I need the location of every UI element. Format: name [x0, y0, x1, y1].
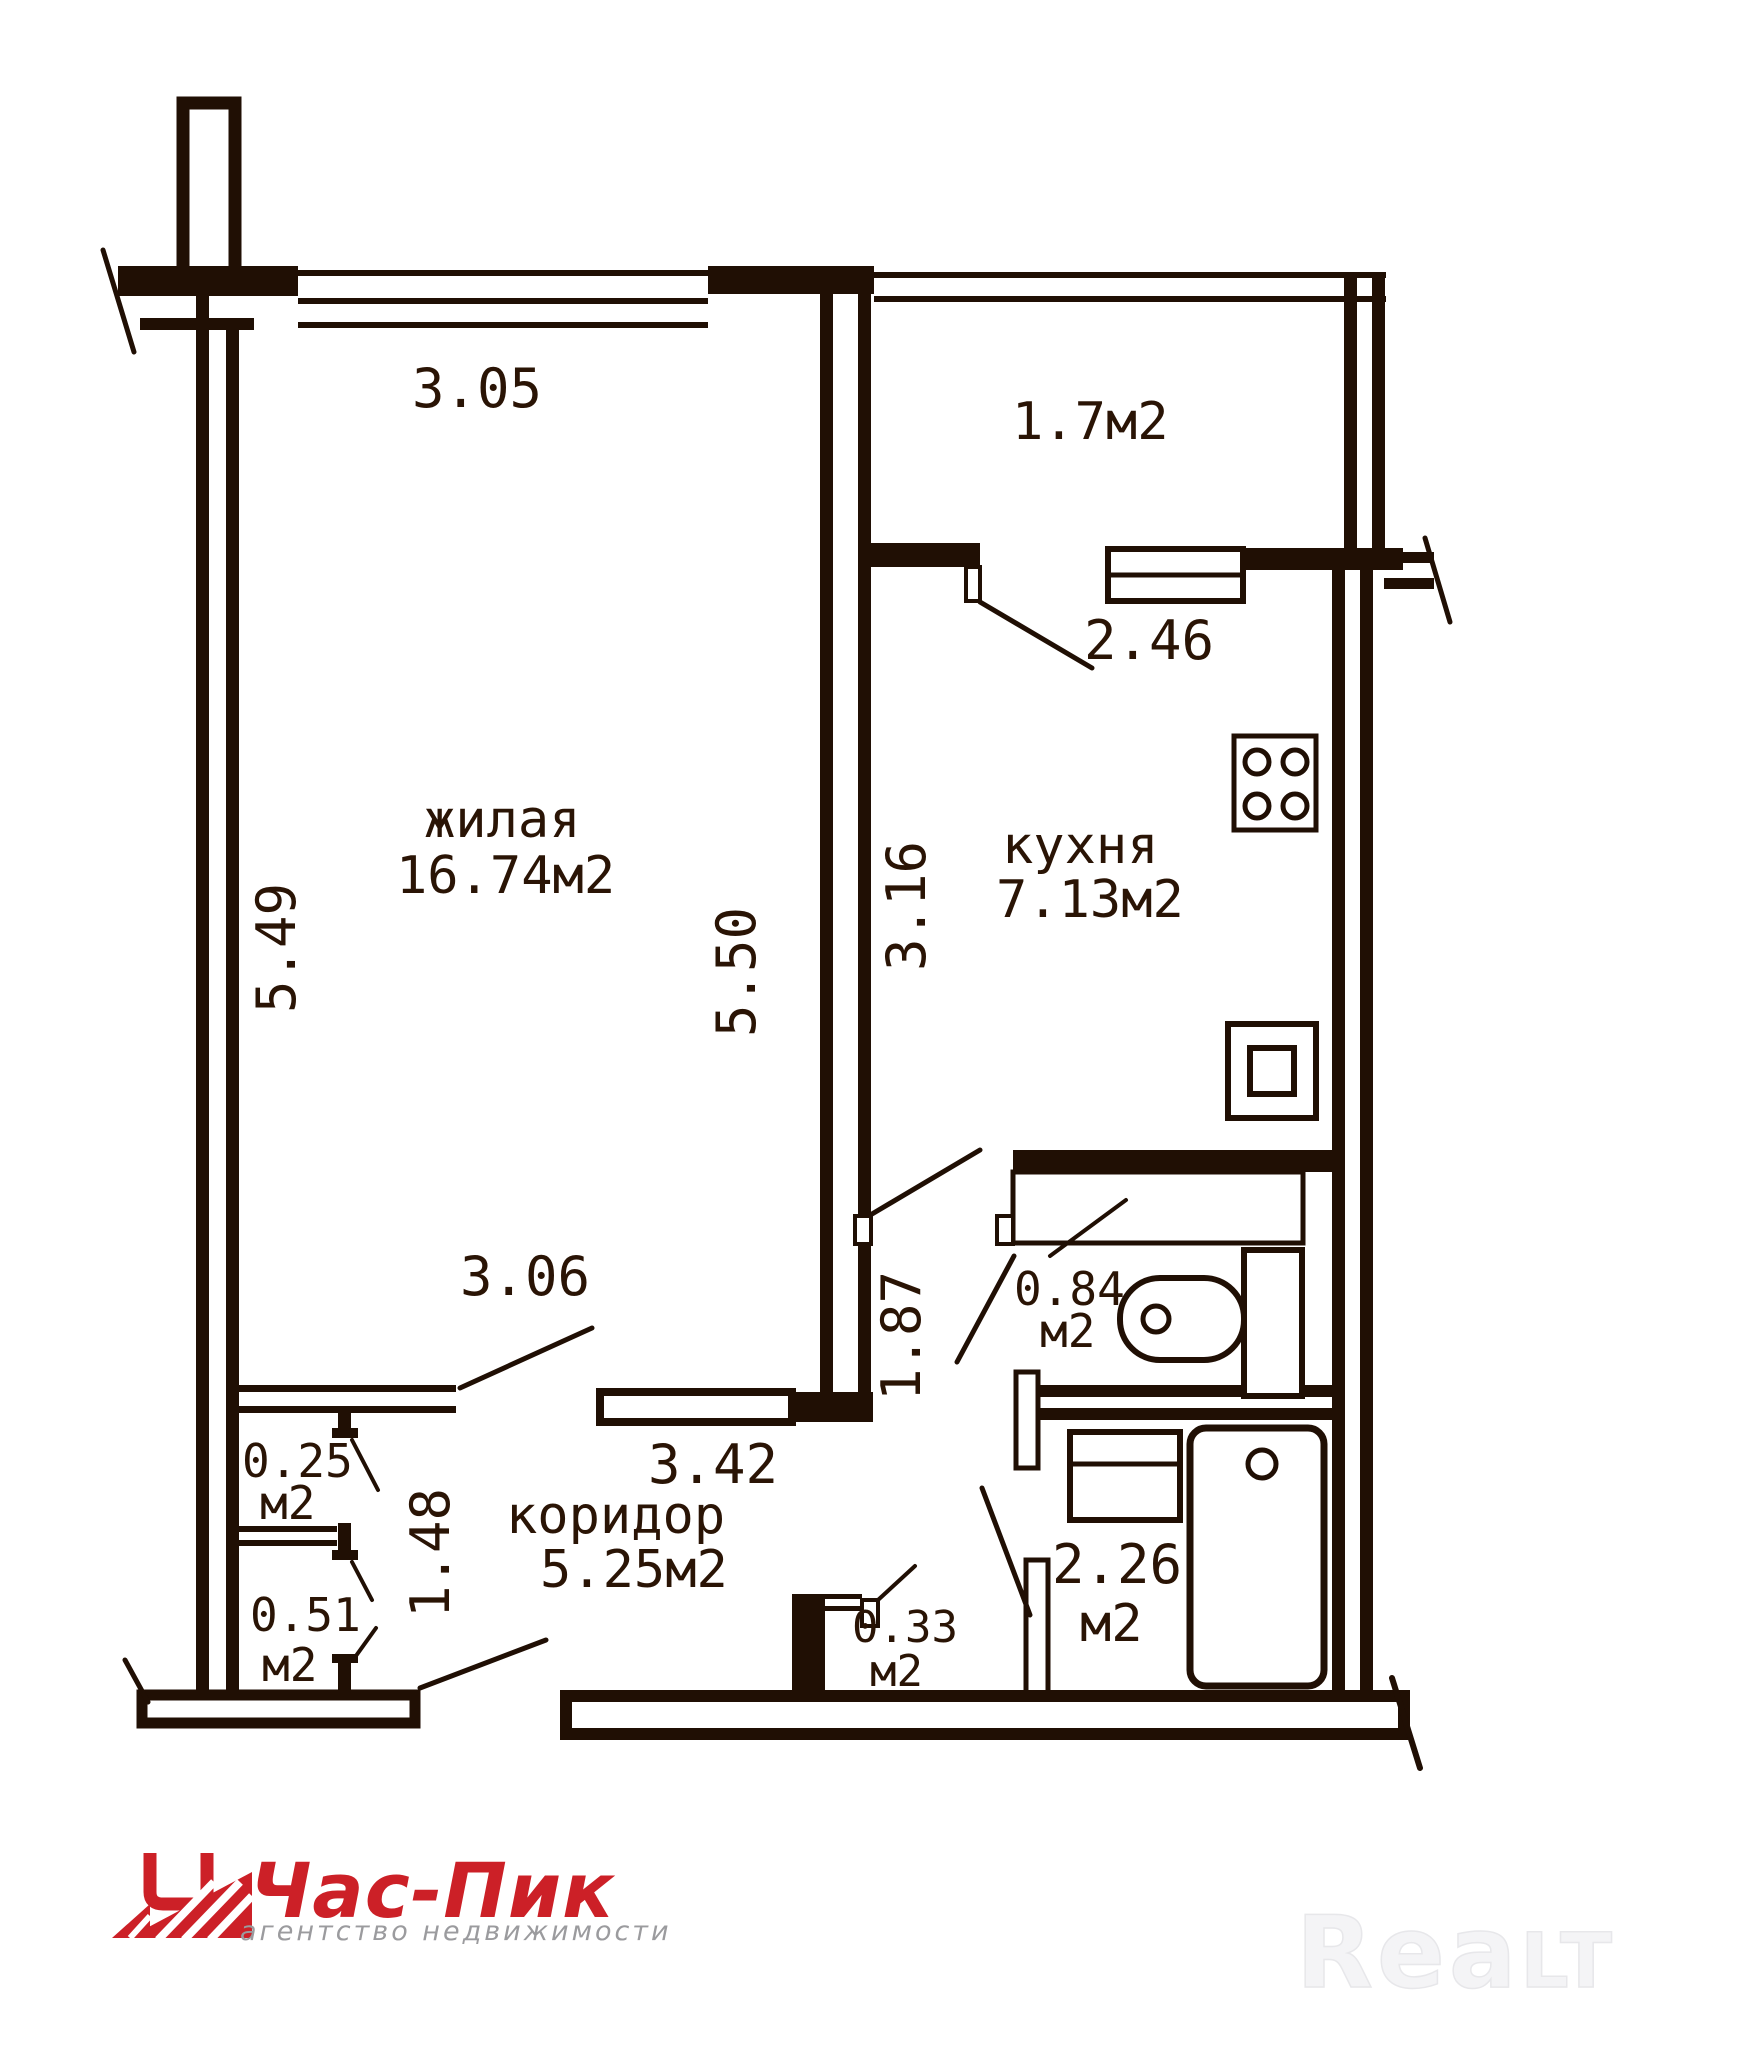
agency-tagline: агентство недвижимости [240, 1916, 672, 1947]
label-bathroom-area: 2.26 [1052, 1538, 1182, 1592]
bathroom-door-swing [982, 1488, 1030, 1615]
bottom-wall-left [142, 1695, 415, 1723]
toilet-door-swing [957, 1256, 1014, 1362]
dim-balcony-opening: 2.46 [1084, 614, 1214, 668]
top-wall-left [118, 266, 298, 296]
label-closet-bottom-area: 0.51 [250, 1592, 361, 1638]
floor-plan-page: 3.05 1.7м2 2.46 жилая 16.74м2 кухня 7.13… [0, 0, 1753, 2071]
middle-wall-left-stroke [820, 294, 833, 1410]
living-window [298, 270, 708, 328]
living-door-swing [460, 1328, 592, 1388]
bathtub-icon [1190, 1428, 1324, 1686]
toilet-door-post [997, 1216, 1013, 1244]
bathroom-left-wall [1026, 1560, 1048, 1695]
vent-cabinet [1013, 1172, 1303, 1243]
balcony-wall-right-segment [1243, 548, 1403, 570]
kitchen-sink-icon [1228, 1024, 1316, 1118]
left-wall-inner [226, 318, 239, 1700]
kitchen-door-swing [872, 1150, 980, 1214]
label-corridor-area: 5.25м2 [540, 1544, 728, 1596]
stove-icon [1234, 736, 1316, 830]
label-closet-top-unit: м2 [260, 1480, 315, 1526]
dim-living-width-bottom: 3.06 [460, 1250, 590, 1304]
dim-window-width: 3.05 [412, 362, 542, 416]
label-living-area: 16.74м2 [396, 850, 615, 902]
middle-wall-end-cap [796, 1392, 873, 1422]
label-kitchen-name: кухня [1002, 820, 1159, 872]
label-niche-area: 0.33 [852, 1606, 958, 1650]
top-wall-middle [708, 266, 874, 294]
washbasin-icon [1070, 1432, 1180, 1520]
dim-corridor-width: 3.42 [648, 1438, 778, 1492]
right-wall-stub-bottom [1384, 578, 1434, 589]
bottom-wall-main [566, 1696, 1404, 1734]
label-niche-unit: м2 [870, 1650, 923, 1694]
left-wall-outer [196, 268, 209, 1704]
label-kitchen-area: 7.13м2 [996, 874, 1184, 926]
label-closet-bottom-unit: м2 [262, 1642, 317, 1688]
toilet-bathroom-wall-bottom [1037, 1408, 1333, 1420]
section-tick-top-left [103, 250, 134, 352]
label-balcony-area: 1.7м2 [1012, 396, 1169, 448]
dim-living-depth-left: 5.49 [250, 883, 304, 1013]
label-toilet-unit: м2 [1040, 1308, 1095, 1354]
balcony-right-wall-outer [1344, 272, 1357, 562]
realt-watermark: ReaLT [1296, 1894, 1616, 2011]
balcony-kitchen-wall [858, 543, 980, 567]
balcony-right-wall-inner [1372, 272, 1385, 562]
dim-living-depth-right: 5.50 [710, 907, 764, 1037]
toilet-icon [1120, 1250, 1302, 1396]
label-corridor-name: коридор [506, 1490, 725, 1542]
bathroom-door-jamb-top [1016, 1372, 1038, 1468]
dim-kitchen-depth: 3.16 [880, 841, 934, 971]
label-living-name: жилая [424, 794, 581, 846]
balcony-railing [874, 272, 1386, 302]
balcony-door-post [966, 567, 980, 601]
floor-plan-drawing [0, 0, 1753, 2071]
entrance-door-swing [420, 1640, 546, 1688]
chimney-shaft [183, 103, 235, 277]
top-wall-left-inner [140, 318, 254, 330]
watermark-part1: Rea [1296, 1894, 1520, 2011]
watermark-part2: LT [1520, 1916, 1616, 2005]
right-wall-outer [1360, 552, 1373, 1732]
kitchen-door-post [855, 1216, 871, 1244]
dim-hall-depth: 1.87 [875, 1271, 929, 1401]
living-bottom-wall-right [600, 1392, 792, 1422]
kitchen-bottom-wall [1013, 1150, 1338, 1172]
living-bottom-wall-left [238, 1385, 456, 1413]
label-bathroom-unit: м2 [1080, 1598, 1143, 1650]
agency-logo-mark [112, 1853, 252, 1940]
balcony-door-swing [980, 602, 1092, 668]
dim-closet-depth: 1.48 [404, 1488, 458, 1618]
right-wall-inner [1332, 552, 1345, 1732]
